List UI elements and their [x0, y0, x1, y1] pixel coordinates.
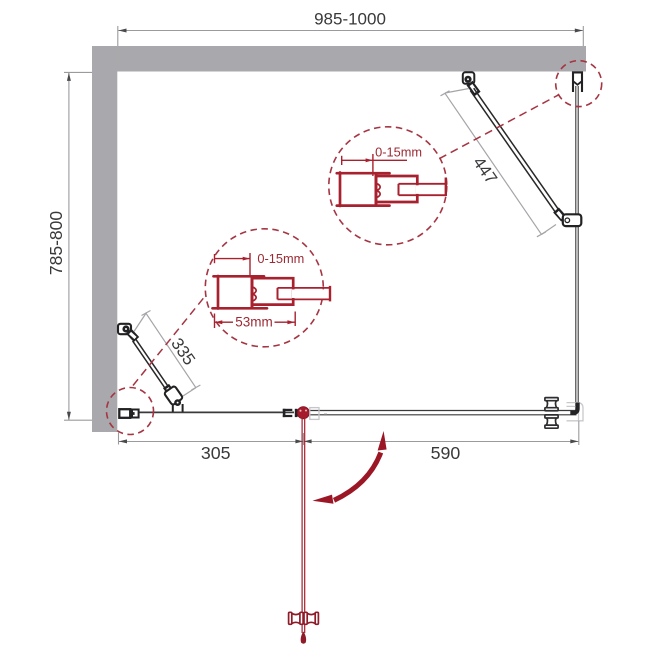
svg-text:785-800: 785-800 [46, 211, 66, 275]
svg-text:0-15mm: 0-15mm [257, 251, 304, 266]
svg-text:590: 590 [431, 443, 461, 463]
svg-text:53mm: 53mm [235, 315, 273, 330]
svg-text:305: 305 [201, 443, 231, 463]
svg-text:985-1000: 985-1000 [314, 10, 386, 29]
svg-text:0-15mm: 0-15mm [375, 144, 422, 159]
